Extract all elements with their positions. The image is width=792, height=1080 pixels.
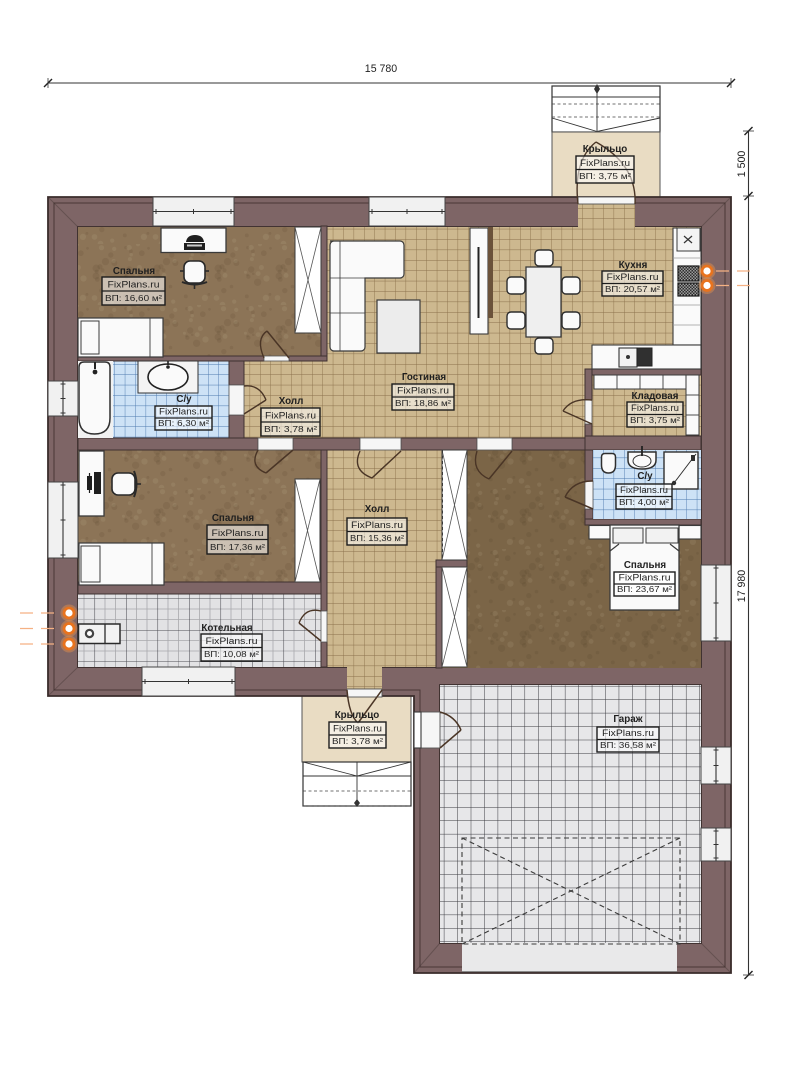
- svg-text:FixPlans.ru: FixPlans.ru: [159, 407, 208, 417]
- svg-text:ВП: 15,36 м²: ВП: 15,36 м²: [350, 533, 404, 543]
- svg-text:FixPlans.ru: FixPlans.ru: [620, 485, 668, 495]
- svg-text:ВП: 10,08 м²: ВП: 10,08 м²: [204, 649, 259, 659]
- svg-text:Спальня: Спальня: [624, 560, 667, 571]
- svg-text:ВП: 3,78 м²: ВП: 3,78 м²: [332, 736, 383, 746]
- svg-text:FixPlans.ru: FixPlans.ru: [333, 724, 382, 734]
- svg-text:Гостиная: Гостиная: [402, 372, 447, 383]
- svg-text:17 980: 17 980: [736, 570, 748, 603]
- svg-text:Гараж: Гараж: [613, 714, 643, 725]
- svg-text:ВП: 4,00 м²: ВП: 4,00 м²: [619, 497, 669, 507]
- svg-text:FixPlans.ru: FixPlans.ru: [580, 158, 630, 168]
- svg-text:ВП: 3,75 м²: ВП: 3,75 м²: [630, 415, 680, 425]
- svg-text:FixPlans.ru: FixPlans.ru: [619, 573, 671, 583]
- svg-text:15 780: 15 780: [365, 63, 398, 75]
- svg-text:ВП: 23,67 м²: ВП: 23,67 м²: [617, 584, 672, 594]
- svg-text:Холл: Холл: [365, 504, 390, 515]
- svg-text:Котельная: Котельная: [201, 623, 253, 634]
- svg-text:ВП: 36,58 м²: ВП: 36,58 м²: [600, 740, 656, 750]
- svg-text:ВП: 3,75 м²: ВП: 3,75 м²: [579, 171, 631, 181]
- svg-text:Кухня: Кухня: [619, 260, 648, 271]
- svg-text:Спальня: Спальня: [212, 513, 255, 524]
- svg-text:FixPlans.ru: FixPlans.ru: [631, 403, 679, 413]
- svg-text:ВП: 17,36 м²: ВП: 17,36 м²: [210, 542, 265, 552]
- svg-text:FixPlans.ru: FixPlans.ru: [212, 528, 264, 538]
- svg-text:ВП: 16,60 м²: ВП: 16,60 м²: [105, 293, 162, 303]
- svg-text:Крыльцо: Крыльцо: [335, 710, 380, 721]
- svg-text:FixPlans.ru: FixPlans.ru: [607, 272, 659, 282]
- svg-text:FixPlans.ru: FixPlans.ru: [108, 280, 160, 290]
- svg-text:ВП: 18,86 м²: ВП: 18,86 м²: [395, 398, 451, 408]
- svg-text:С/у: С/у: [637, 471, 653, 482]
- svg-text:ВП: 20,57 м²: ВП: 20,57 м²: [605, 284, 660, 294]
- svg-text:Кладовая: Кладовая: [632, 391, 679, 402]
- svg-text:FixPlans.ru: FixPlans.ru: [265, 411, 316, 421]
- svg-text:Крыльцо: Крыльцо: [583, 144, 628, 155]
- svg-text:1 500: 1 500: [736, 151, 748, 178]
- svg-text:Спальня: Спальня: [113, 266, 156, 277]
- svg-text:FixPlans.ru: FixPlans.ru: [351, 520, 403, 530]
- svg-text:Холл: Холл: [279, 396, 304, 407]
- svg-text:FixPlans.ru: FixPlans.ru: [397, 386, 449, 396]
- svg-text:С/у: С/у: [176, 394, 192, 405]
- svg-text:ВП: 6,30 м²: ВП: 6,30 м²: [158, 418, 209, 428]
- svg-text:ВП: 3,78 м²: ВП: 3,78 м²: [264, 424, 317, 434]
- svg-text:FixPlans.ru: FixPlans.ru: [206, 636, 258, 646]
- svg-text:FixPlans.ru: FixPlans.ru: [602, 728, 654, 738]
